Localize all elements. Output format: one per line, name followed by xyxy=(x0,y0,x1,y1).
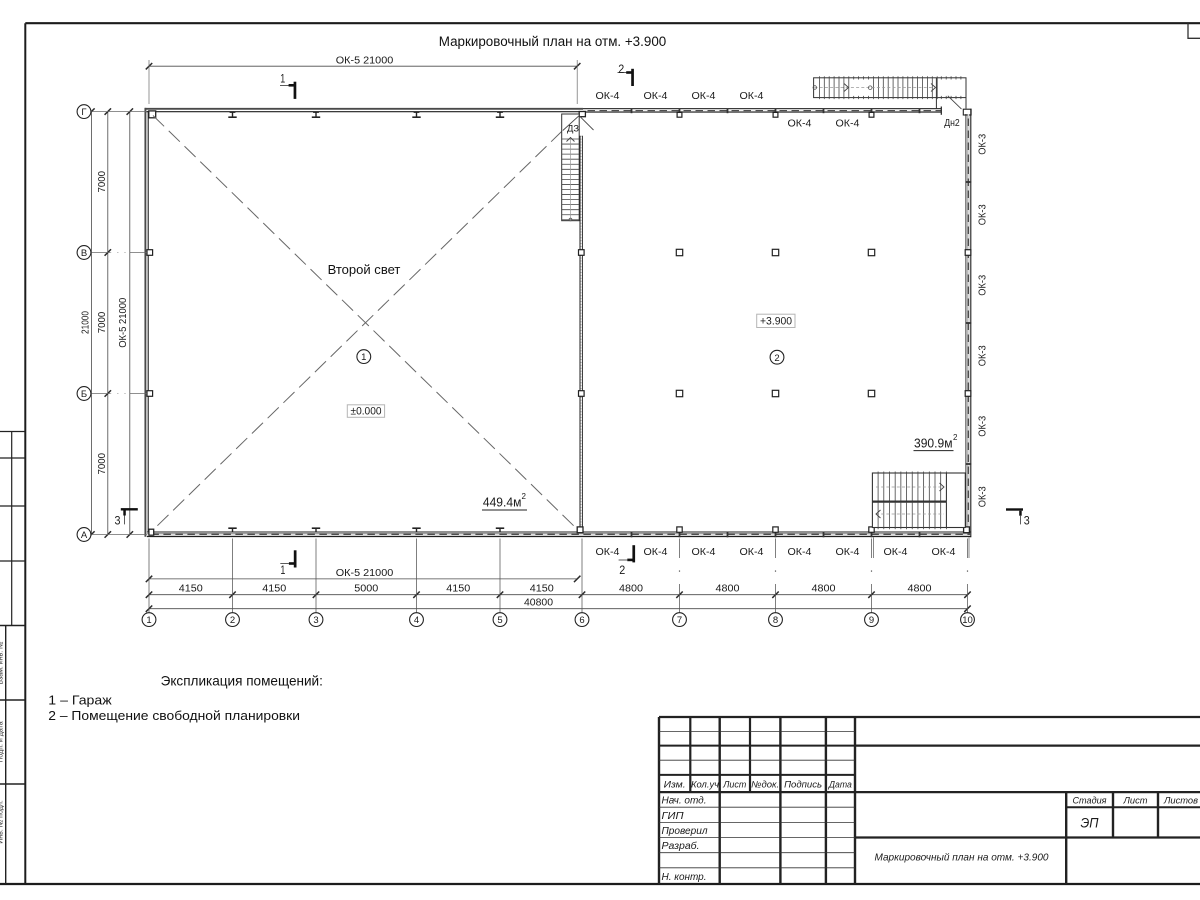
svg-text:Кол.уч: Кол.уч xyxy=(691,779,719,789)
svg-text:Стадия: Стадия xyxy=(1073,795,1107,805)
svg-text:1: 1 xyxy=(280,74,285,86)
svg-text:ОК-4: ОК-4 xyxy=(740,547,765,558)
svg-text:Инв. № подл.: Инв. № подл. xyxy=(0,800,4,844)
svg-text:2: 2 xyxy=(230,615,235,626)
svg-text:1 – Гараж: 1 – Гараж xyxy=(48,693,112,708)
svg-text:Лист: Лист xyxy=(722,779,746,789)
svg-text:ОК-4: ОК-4 xyxy=(740,91,765,102)
svg-text:А: А xyxy=(81,530,88,541)
svg-text:Второй свет: Второй свет xyxy=(328,263,401,277)
svg-text:5000: 5000 xyxy=(354,584,378,595)
svg-text:Н. контр.: Н. контр. xyxy=(662,872,707,883)
svg-text:3: 3 xyxy=(1024,515,1030,527)
svg-text:ОК-4: ОК-4 xyxy=(692,91,717,102)
svg-text:Разраб.: Разраб. xyxy=(662,840,700,852)
svg-text:4150: 4150 xyxy=(262,584,286,595)
svg-text:3: 3 xyxy=(313,615,318,626)
svg-text:Дн2: Дн2 xyxy=(944,118,960,129)
svg-text:1: 1 xyxy=(361,352,366,363)
svg-text:1: 1 xyxy=(280,565,285,577)
svg-text:7: 7 xyxy=(677,615,682,626)
svg-text:Подп. и дата: Подп. и дата xyxy=(0,721,4,762)
svg-text:10: 10 xyxy=(962,615,973,626)
svg-text:ОК-4: ОК-4 xyxy=(932,547,957,558)
svg-text:Подпись: Подпись xyxy=(784,779,822,789)
svg-text:ОК-4: ОК-4 xyxy=(596,91,621,102)
svg-text:4150: 4150 xyxy=(179,584,203,595)
svg-text:ОК-4: ОК-4 xyxy=(788,547,813,558)
svg-text:2 – Помещение свободной планир: 2 – Помещение свободной планировки xyxy=(48,708,300,723)
svg-text:№док.: №док. xyxy=(751,779,779,789)
svg-text:9: 9 xyxy=(869,615,874,626)
svg-text:Нач. отд.: Нач. отд. xyxy=(662,796,707,807)
svg-text:7000: 7000 xyxy=(96,171,108,193)
svg-text:Взам. инв. №: Взам. инв. № xyxy=(0,641,4,684)
svg-text:ОК-4: ОК-4 xyxy=(644,91,669,102)
svg-text:Изм.: Изм. xyxy=(664,779,686,789)
svg-text:40800: 40800 xyxy=(524,598,553,609)
svg-text:4800: 4800 xyxy=(619,584,643,595)
svg-text:ОК-3: ОК-3 xyxy=(977,345,988,367)
svg-text:Лист: Лист xyxy=(1122,795,1147,805)
svg-text:2: 2 xyxy=(618,64,624,76)
svg-text:ОК-3: ОК-3 xyxy=(977,274,988,296)
svg-text:2: 2 xyxy=(953,433,958,442)
svg-text:ОК-5 21000: ОК-5 21000 xyxy=(336,568,394,579)
svg-text:6: 6 xyxy=(579,615,584,626)
svg-text:Маркировочный план на отм. +3.: Маркировочный план на отм. +3.900 xyxy=(439,34,667,49)
svg-text:4: 4 xyxy=(414,615,419,626)
svg-text:4150: 4150 xyxy=(446,584,470,595)
svg-text:21000: 21000 xyxy=(80,311,92,334)
svg-text:+3.900: +3.900 xyxy=(760,316,792,328)
svg-text:4150: 4150 xyxy=(530,584,554,595)
svg-text:7000: 7000 xyxy=(96,312,108,334)
svg-text:ОК-3: ОК-3 xyxy=(977,415,988,437)
svg-text:ОК-4: ОК-4 xyxy=(692,547,717,558)
svg-text:Проверил: Проверил xyxy=(662,826,708,837)
svg-text:Экспликация помещений:: Экспликация помещений: xyxy=(161,672,323,688)
svg-text:ОК-4: ОК-4 xyxy=(788,119,813,130)
svg-text:7000: 7000 xyxy=(96,453,108,475)
svg-text:2: 2 xyxy=(619,565,625,577)
svg-text:ОК-4: ОК-4 xyxy=(884,547,909,558)
svg-text:ОК-4: ОК-4 xyxy=(596,547,621,558)
svg-text:В: В xyxy=(81,248,87,259)
svg-text:ОК-5 21000: ОК-5 21000 xyxy=(117,298,129,348)
svg-text:4800: 4800 xyxy=(812,584,836,595)
svg-text:449.4м: 449.4м xyxy=(483,495,522,510)
svg-text:ОК-3: ОК-3 xyxy=(977,133,988,155)
svg-text:4800: 4800 xyxy=(908,584,932,595)
svg-text:4800: 4800 xyxy=(716,584,740,595)
svg-text:ГИП: ГИП xyxy=(662,811,685,822)
svg-text:2: 2 xyxy=(522,492,527,501)
svg-text:ОК-5 21000: ОК-5 21000 xyxy=(336,55,394,66)
svg-text:3: 3 xyxy=(115,515,121,527)
svg-text:Маркировочный план на отм. +3.: Маркировочный план на отм. +3.900 xyxy=(875,852,1049,863)
svg-text:ЭП: ЭП xyxy=(1081,815,1099,830)
svg-text:390.9м: 390.9м xyxy=(914,436,953,451)
svg-text:ОК-3: ОК-3 xyxy=(977,486,988,508)
svg-text:Листов: Листов xyxy=(1163,795,1198,805)
svg-text:Б: Б xyxy=(81,389,87,400)
svg-text:Г: Г xyxy=(81,107,86,118)
svg-text:ОК-4: ОК-4 xyxy=(836,547,861,558)
svg-text:2: 2 xyxy=(774,353,779,364)
svg-text:8: 8 xyxy=(773,615,778,626)
svg-text:±0.000: ±0.000 xyxy=(351,405,382,417)
svg-text:1: 1 xyxy=(146,615,151,626)
svg-text:ОК-4: ОК-4 xyxy=(836,119,861,130)
svg-text:5: 5 xyxy=(497,615,502,626)
svg-text:ОК-4: ОК-4 xyxy=(644,547,669,558)
svg-text:Дата: Дата xyxy=(828,779,852,789)
svg-text:ОК-3: ОК-3 xyxy=(977,204,988,226)
